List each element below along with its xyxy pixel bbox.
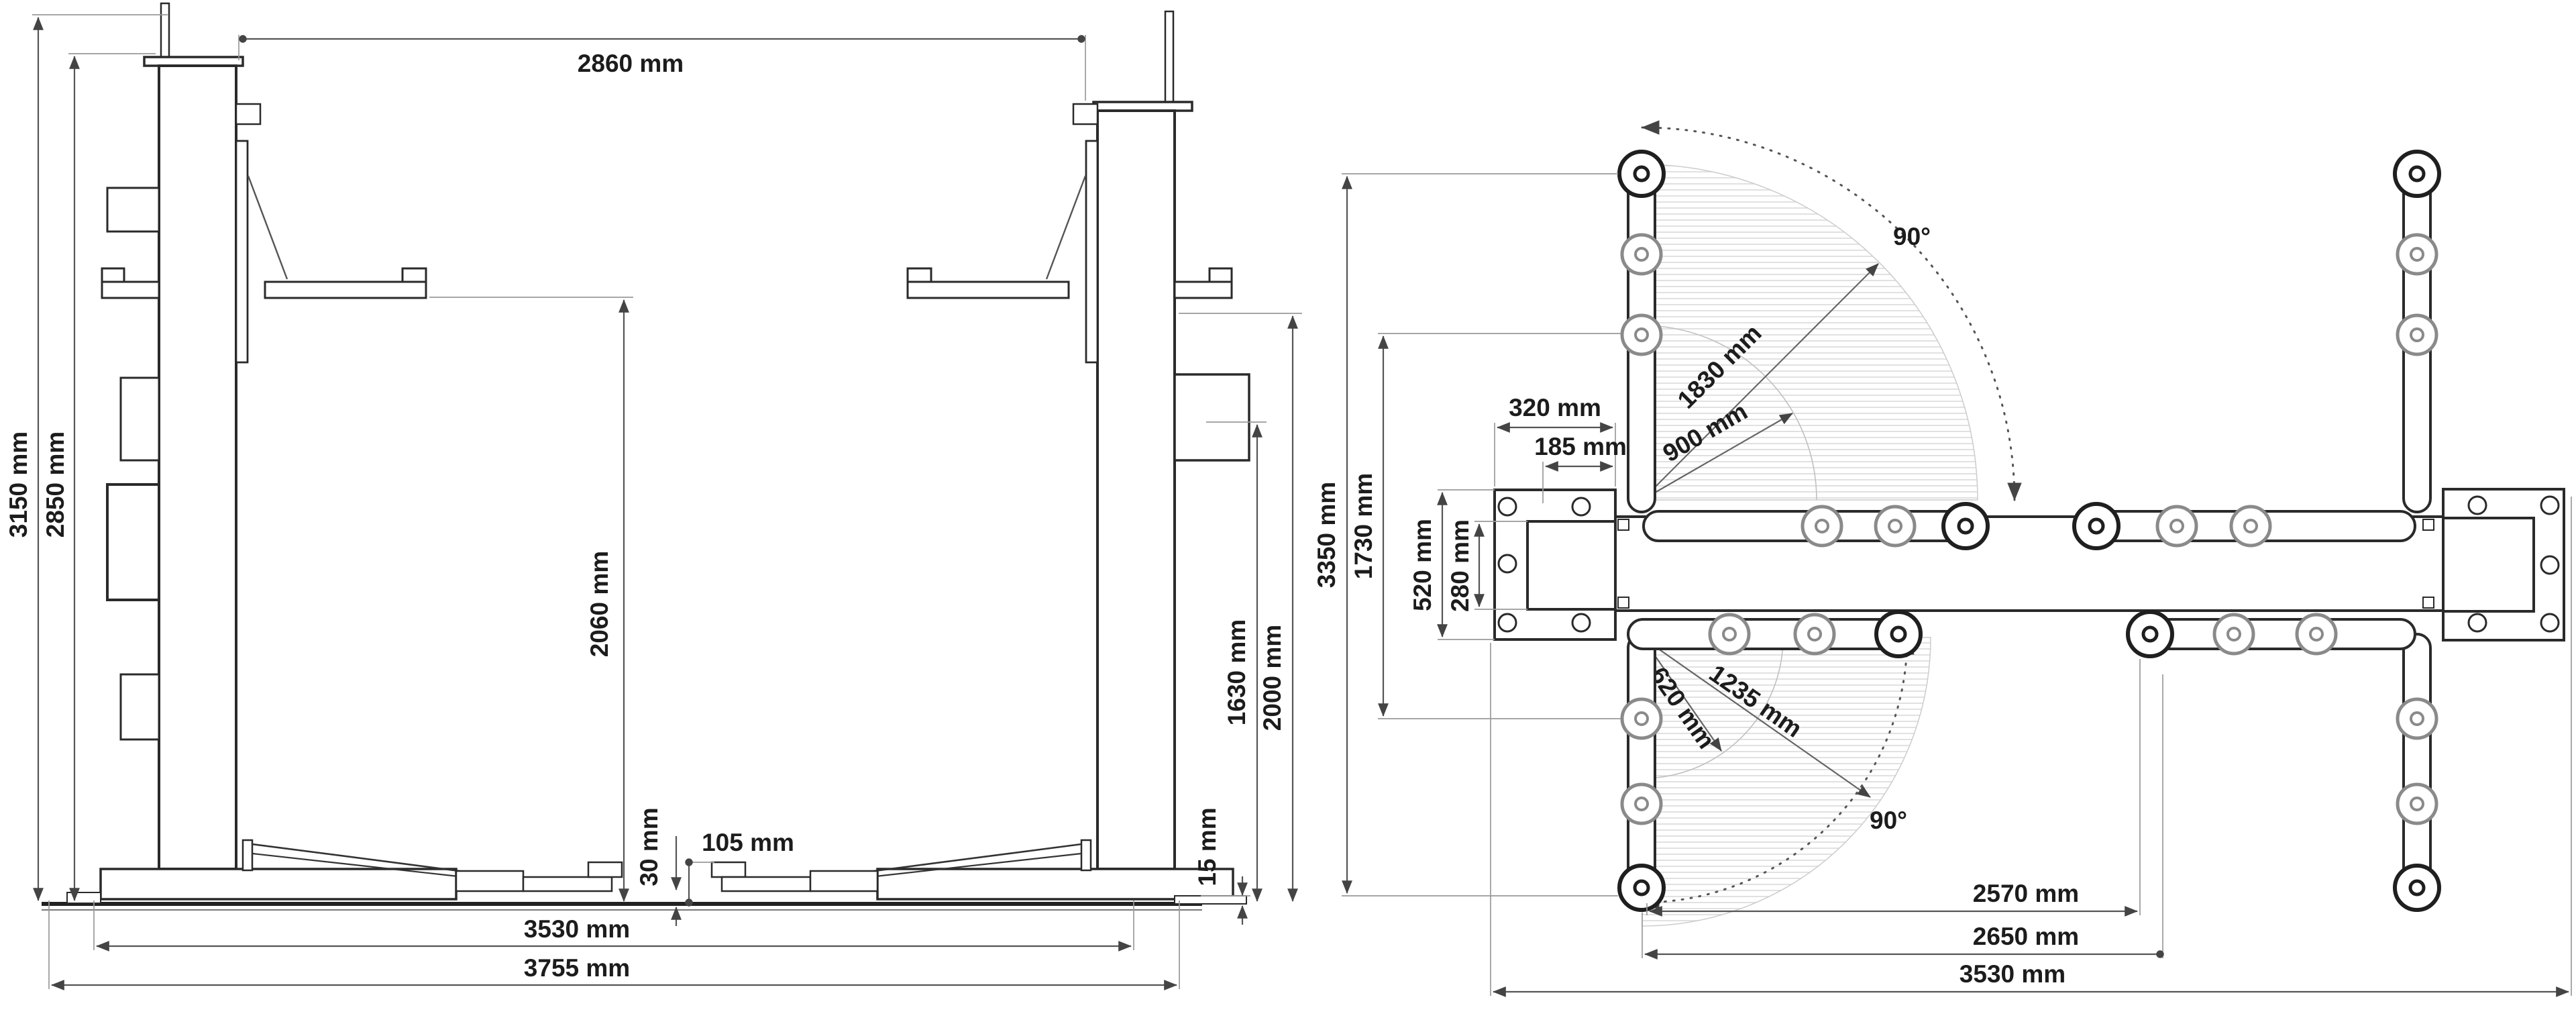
left-column-assembly bbox=[67, 3, 470, 903]
dim-label-280: 280 mm bbox=[1446, 519, 1474, 612]
anchor-hole bbox=[1572, 498, 1590, 515]
dim-lift-height-2060: 2060 mm bbox=[429, 297, 633, 901]
anchor-hole bbox=[2469, 614, 2486, 631]
anchor-hole bbox=[1499, 614, 1516, 631]
dim-label-2650: 2650 mm bbox=[1973, 923, 2079, 950]
right-outer-pad bbox=[1210, 268, 1232, 282]
right-carriage-hook bbox=[1073, 104, 1097, 124]
left-column-top-rod bbox=[161, 3, 169, 57]
anchor-hole bbox=[2469, 497, 2486, 514]
right-column-box bbox=[1175, 374, 1249, 460]
anchor-hole bbox=[2541, 556, 2559, 574]
left-raised-block bbox=[588, 862, 622, 877]
left-post-plan bbox=[1495, 490, 1615, 639]
dim-label-185: 185 mm bbox=[1534, 433, 1627, 460]
angle-label-top: 90° bbox=[1893, 223, 1931, 250]
left-post-section bbox=[1527, 521, 1615, 609]
left-column-box-mid bbox=[121, 378, 159, 460]
right-column-top-rod bbox=[1165, 11, 1173, 102]
right-arm-raised bbox=[908, 282, 1069, 298]
right-outer-arm bbox=[1175, 282, 1232, 298]
right-post-section bbox=[2443, 518, 2534, 611]
left-arm-raised bbox=[265, 282, 426, 298]
right-arm-support-strut bbox=[1046, 176, 1085, 279]
angle-label-bottom: 90° bbox=[1870, 807, 1907, 834]
dim-label-3755: 3755 mm bbox=[524, 954, 630, 982]
dim-width-3530-front: 3530 mm bbox=[94, 901, 1134, 950]
left-arm-pad bbox=[402, 268, 426, 282]
floor-line bbox=[42, 904, 1202, 910]
dim-label-2060: 2060 mm bbox=[586, 551, 613, 657]
anchor-hole bbox=[2541, 614, 2559, 631]
left-column-box-top bbox=[107, 188, 159, 232]
left-carriage-hook bbox=[236, 104, 260, 124]
dim-label-30: 30 mm bbox=[635, 807, 663, 886]
left-arm-support-strut bbox=[248, 176, 287, 279]
right-post-arms bbox=[2074, 152, 2439, 911]
dim-width-3755: 3755 mm bbox=[49, 901, 1179, 989]
dim-label-15: 15 mm bbox=[1193, 807, 1221, 886]
lift-dimension-drawing: 2860 mm 3150 mm 2850 mm 2060 mm 1630 mm bbox=[0, 0, 2576, 1026]
right-raised-block bbox=[712, 862, 745, 877]
right-floor-strip bbox=[1175, 896, 1246, 904]
anchor-hole bbox=[2541, 497, 2559, 514]
dim-label-2860: 2860 mm bbox=[578, 50, 684, 77]
dim-label-2850: 2850 mm bbox=[42, 431, 69, 537]
dim-label-520: 520 mm bbox=[1409, 519, 1436, 611]
dim-label-2570: 2570 mm bbox=[1973, 880, 2079, 907]
anchor-hole bbox=[1499, 555, 1516, 572]
left-column bbox=[159, 66, 236, 869]
technical-drawing-page: 2860 mm 3150 mm 2850 mm 2060 mm 1630 mm bbox=[0, 0, 2576, 1026]
dim-label-1730: 1730 mm bbox=[1350, 473, 1377, 579]
left-column-box-low bbox=[121, 674, 159, 739]
dim-label-105: 105 mm bbox=[702, 829, 794, 856]
dim-column-height-2850: 2850 mm bbox=[42, 54, 156, 901]
dim-label-3530-front: 3530 mm bbox=[524, 915, 630, 943]
dim-label-320: 320 mm bbox=[1509, 394, 1601, 421]
dim-label-3350: 3350 mm bbox=[1313, 482, 1340, 588]
dim-label-3530-plan: 3530 mm bbox=[1960, 960, 2065, 988]
dim-plate-15: 15 mm bbox=[1193, 807, 1250, 925]
right-column bbox=[1097, 111, 1175, 869]
plan-view: 90° 1830 mm 900 mm 1235 mm 620 mm 90° bbox=[1313, 127, 2571, 996]
left-carriage bbox=[236, 141, 248, 362]
right-column-assembly bbox=[864, 11, 1249, 904]
center-floor-plates bbox=[456, 862, 877, 891]
right-post-plan bbox=[2443, 489, 2564, 640]
left-outer-pad bbox=[102, 268, 124, 282]
left-base-plate bbox=[101, 869, 456, 899]
right-base-plate bbox=[877, 869, 1233, 899]
dim-label-3150: 3150 mm bbox=[5, 431, 32, 537]
bottom-swing-sector bbox=[1642, 637, 1931, 926]
dim-label-1630: 1630 mm bbox=[1223, 619, 1250, 725]
right-arm-pad bbox=[908, 268, 931, 282]
dim-label-2000: 2000 mm bbox=[1258, 625, 1286, 731]
anchor-hole bbox=[1499, 498, 1516, 515]
left-power-unit-box bbox=[107, 484, 159, 600]
left-floor-strip bbox=[67, 892, 101, 903]
front-elevation-view: 2860 mm 3150 mm 2850 mm 2060 mm 1630 mm bbox=[5, 3, 1302, 989]
arm-bottom-right-extended bbox=[2133, 619, 2415, 649]
left-outer-arm bbox=[102, 282, 159, 298]
right-carriage bbox=[1086, 141, 1097, 362]
dim-top-width-2860: 2860 mm bbox=[239, 35, 1085, 101]
dim-cover-30: 30 mm bbox=[635, 807, 676, 926]
anchor-hole bbox=[1572, 614, 1590, 631]
